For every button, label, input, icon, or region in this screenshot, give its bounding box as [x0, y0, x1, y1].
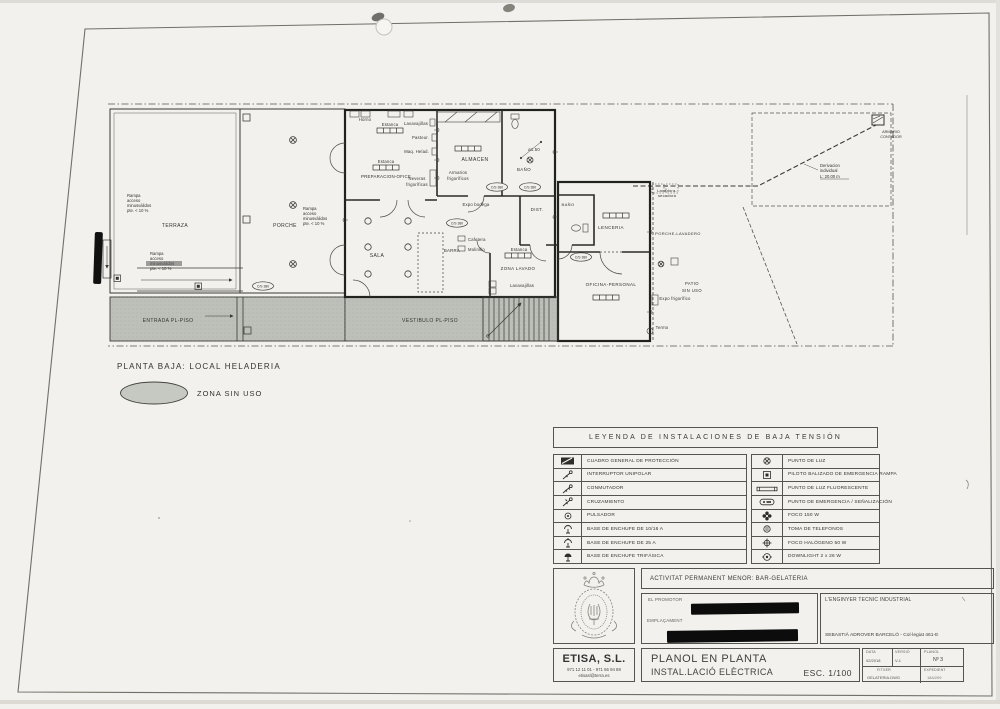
derivacion-note: individual — [820, 168, 838, 173]
legend-left-column: CUADRO GENERAL DE PROTECCIÓN INTERRUPTOR… — [553, 454, 747, 564]
cuadro-general-icon — [554, 455, 582, 468]
armario-contador-symbol — [872, 115, 884, 125]
legend-row: PILOTO BALIZADO DE EMERGENCIA RAMPA — [752, 469, 879, 483]
enchufe-25-icon — [554, 537, 582, 550]
enchufe-trifasica-icon — [554, 550, 582, 563]
legend-right-column: PUNTO DE LUZ PILOTO BALIZADO DE EMERGENC… — [751, 454, 880, 564]
sala-label: SALA — [370, 253, 385, 259]
interruptor-unipolar-icon — [554, 469, 582, 482]
rampa-note: pte. < 10 % — [127, 208, 149, 213]
legend-row: BASE DE ENCHUFE DE 10/16 A — [554, 523, 746, 537]
expo-frigo-label: Expo frigorífico — [659, 296, 691, 301]
expo-bodega-label: Expo bodega — [463, 202, 490, 207]
legend-label: BASE DE ENCHUFE DE 25 A — [582, 541, 656, 546]
lavadora-label-2: secadora — [658, 193, 677, 198]
patio-label-2: SIN USO — [682, 288, 702, 293]
bano1-label: BAÑO — [517, 167, 531, 172]
promotor-label: EL PROMOTOR — [648, 597, 682, 602]
circuit-tag-label: C/S 380 — [524, 185, 536, 189]
legend-label: PUNTO DE EMERGENCIA / SEÑALIZACIÓN — [783, 500, 892, 505]
legend-label: CUADRO GENERAL DE PROTECCIÓN — [582, 459, 679, 464]
conmutador-icon — [554, 482, 582, 495]
punto-de-luz-icon — [752, 455, 783, 468]
promotor-box: EL PROMOTOR EMPLAÇAMENT — [641, 593, 818, 644]
foco-halogeno-icon — [752, 537, 783, 550]
almacen-label: ALMACEN — [462, 157, 489, 163]
plan-heading-group: PLANTA BAJA: LOCAL HELADERIA ZONA SIN US… — [117, 362, 281, 404]
cruzamiento-icon — [554, 496, 582, 509]
lenceria-label: LENCERIA — [598, 225, 624, 230]
pasteur-label: Pasteur. — [412, 135, 429, 140]
punch-hole — [376, 19, 392, 35]
downlight-symbols — [365, 218, 411, 277]
legend-label: CRUZAMIENTO — [582, 500, 624, 505]
ink-smudge — [502, 3, 515, 13]
legend-row: BASE DE ENCHUFE TRIFÁSICA — [554, 550, 746, 563]
almacen-shelf — [437, 112, 500, 122]
engineer-box: L'ENGINYER TECNIC INDUSTRIAL SEBASTIÀ AD… — [820, 593, 994, 644]
terraza-label: TERRAZA — [162, 223, 188, 229]
lavavajillas-label: Lavavajillas — [404, 121, 428, 126]
company-box: ETISA, S.L. 971 12 11 01 - 971 66 94 88 … — [553, 648, 635, 682]
company-name: ETISA, S.L. — [554, 653, 634, 665]
diameter-label: ø1.50 — [528, 147, 540, 152]
circuit-tags: C/S 380 C/S 380 C/S 380 C/S 380 C/S 380 — [253, 183, 592, 290]
scanned-sheet: C/S 380 C/S 380 C/S 380 C/S 380 C/S 380 … — [0, 0, 1000, 704]
estanca-label: Estanca — [511, 247, 528, 252]
rampa-note: pte. < 10 % — [303, 221, 325, 226]
legend-label: DOWNLIGHT 2 x 26 W — [783, 554, 841, 559]
patio-label-1: PATIO — [685, 281, 699, 286]
redacted-address — [667, 629, 798, 643]
legend-row: CUADRO GENERAL DE PROTECCIÓN — [554, 455, 746, 469]
zona-sin-uso-label: ZONA SIN USO — [197, 389, 262, 398]
legend-label: INTERRUPTOR UNIPOLAR — [582, 472, 651, 477]
activity-text: ACTIVITAT PERMANENT MENOR: BAR-GELATERIA — [650, 576, 808, 582]
legend-row: CONMUTADOR — [554, 482, 746, 496]
legend-label: PUNTO DE LUZ FLUORESCENTE — [783, 486, 868, 491]
expedient-label: EXPEDIENT — [924, 668, 946, 672]
logo-box — [553, 568, 635, 644]
oficina-label: OFICINA-PERSONAL — [586, 282, 637, 287]
armario-contador-label: ARMARIO — [882, 130, 900, 134]
smudged-text — [146, 261, 182, 266]
derivacion-individual-line — [633, 115, 884, 186]
document-title-box: PLANOL EN PLANTA INSTAL.LACIÓ ELÈCTRICA … — [641, 648, 860, 682]
punch-holes — [371, 3, 516, 35]
molinillo-label: Molinillo — [468, 247, 485, 252]
estanca-label: Estanca — [382, 122, 399, 127]
legend-row: CRUZAMIENTO — [554, 496, 746, 510]
legend-label: TOMA DE TELEFONOS — [783, 527, 843, 532]
legend-row: INTERRUPTOR UNIPOLAR — [554, 469, 746, 483]
enchufe-1016-icon — [554, 523, 582, 536]
legend-row: FOCO HALÓGENO 50 W — [752, 537, 879, 551]
scale-label: ESC. 1/100 — [804, 668, 852, 678]
toilet-bano1 — [511, 114, 519, 129]
porche-lavadero-label: PORCHE-LAVADERO — [655, 231, 701, 236]
piloto-balizado-symbols — [114, 275, 202, 290]
legend-row: PULSADOR — [554, 510, 746, 524]
downlight-icon — [752, 550, 783, 563]
fitxer-value: GELATERIA.DWG — [867, 675, 900, 680]
zona-lavado-label: ZONA LAVADO — [501, 266, 536, 271]
legend-row: BASE DE ENCHUFE DE 25 A — [554, 537, 746, 551]
pulsador-icon — [554, 510, 582, 523]
barra-counter — [418, 233, 443, 292]
engineer-name: SEBASTIÀ ADROVER BARCELÓ - Col·legiat 46… — [825, 633, 938, 638]
neveras-label-1: Neveras — [409, 176, 426, 181]
legend-label: PILOTO BALIZADO DE EMERGENCIA RAMPA — [783, 472, 897, 477]
redacted-promotor-name — [691, 602, 799, 615]
engineer-label: L'ENGINYER TECNIC INDUSTRIAL — [825, 597, 911, 603]
legend-panel: LEYENDA DE INSTALACIONES DE BAJA TENSIÓN… — [553, 427, 880, 564]
legend-label: CONMUTADOR — [582, 486, 624, 491]
emplacament-label: EMPLAÇAMENT — [647, 618, 683, 623]
legend-row: PUNTO DE LUZ — [752, 455, 879, 469]
legend-label: PULSADOR — [582, 513, 615, 518]
piloto-emergencia-icon — [752, 469, 783, 482]
circuit-tag-label: C/S 380 — [491, 185, 503, 189]
activity-box: ACTIVITAT PERMANENT MENOR: BAR-GELATERIA — [641, 568, 994, 589]
armarios-label-1: Armarios — [449, 170, 467, 175]
circuit-tag-label: C/S 380 — [451, 221, 463, 225]
legend-row: FOCO 150 W — [752, 510, 879, 524]
drawing-data-grid: DATA 02/2018 VERSIÓ V-1 PLANOL Nº 3 FITX… — [862, 648, 964, 682]
planol-value: Nº 3 — [933, 657, 943, 663]
legend-label: BASE DE ENCHUFE TRIFÁSICA — [582, 554, 664, 559]
rampa-note: pte. < 10 % — [150, 266, 172, 271]
armario-contador-label: CONTADOR — [880, 135, 902, 139]
plan-heading: PLANTA BAJA: LOCAL HELADERIA — [117, 362, 281, 371]
legend-row: DOWNLIGHT 2 x 26 W — [752, 550, 879, 563]
neveras-label-2: frigoríficas — [406, 182, 428, 187]
versio-label: VERSIÓ — [895, 650, 910, 654]
doc-title-line2: INSTAL.LACIÓ ELÈCTRICA — [651, 667, 773, 677]
estanca-label: Estanca — [378, 159, 395, 164]
zona-sin-uso-swatch — [121, 382, 188, 404]
legend-row: PUNTO DE EMERGENCIA / SEÑALIZACIÓN — [752, 496, 879, 510]
dist-label: DIST. — [531, 207, 544, 212]
circuit-tag-label: C/S 380 — [575, 255, 587, 259]
maq-helad-label: Maq. Helad. — [404, 149, 429, 154]
data-value: 02/2018 — [866, 658, 880, 663]
legend-row: PUNTO DE LUZ FLUORESCENTE — [752, 482, 879, 496]
redacted-street-name — [93, 232, 103, 284]
legend-row: TOMA DE TELEFONOS — [752, 523, 879, 537]
engineers-college-emblem — [554, 569, 634, 643]
derivacion-note: L: 20.00 m — [820, 174, 840, 179]
emergencia-senalizacion-icon — [752, 496, 783, 509]
termo-label: Termo — [656, 325, 669, 330]
versio-value: V-1 — [895, 658, 901, 663]
entrada-label: ENTRADA PL-PISO — [143, 318, 194, 324]
fitxer-label: FITXER — [877, 668, 891, 672]
armarios-label-2: frigoríficos — [447, 176, 469, 181]
horno-label: Horno — [359, 117, 372, 122]
preparacion-label: PREPARACION-OFICE — [361, 174, 411, 179]
data-label: DATA — [866, 650, 876, 654]
circuit-tag-label: C/S 380 — [257, 284, 269, 288]
legend-label: FOCO HALÓGENO 50 W — [783, 541, 847, 546]
legend-label: PUNTO DE LUZ — [783, 459, 826, 464]
bano2-label: BAÑO — [562, 202, 575, 207]
company-email: etisasl@terra.es — [554, 673, 634, 678]
toilet-bano2 — [572, 224, 589, 232]
toma-telefonos-icon — [752, 523, 783, 536]
legend-label: BASE DE ENCHUFE DE 10/16 A — [582, 527, 663, 532]
foco-150-icon — [752, 510, 783, 523]
company-phone: 971 12 11 01 - 971 66 94 88 — [554, 667, 634, 672]
fluorescente-icon — [752, 482, 783, 495]
planol-label: PLANOL — [924, 650, 939, 654]
expedient-value: 184/209 — [927, 675, 941, 680]
doc-title-line1: PLANOL EN PLANTA — [651, 653, 767, 665]
title-block: ACTIVITAT PERMANENT MENOR: BAR-GELATERIA… — [552, 566, 995, 684]
porche-label: PORCHE — [273, 223, 297, 229]
legend-title: LEYENDA DE INSTALACIONES DE BAJA TENSIÓN — [553, 427, 878, 448]
legend-label: FOCO 150 W — [783, 513, 819, 518]
cafetera-label: Cafetera — [468, 237, 486, 242]
barra-label: BARRA — [444, 248, 460, 253]
vestibulo-label: VESTIBULO PL-PISO — [402, 318, 458, 324]
lavavajillas2-label: Lavavajillas — [510, 283, 534, 288]
